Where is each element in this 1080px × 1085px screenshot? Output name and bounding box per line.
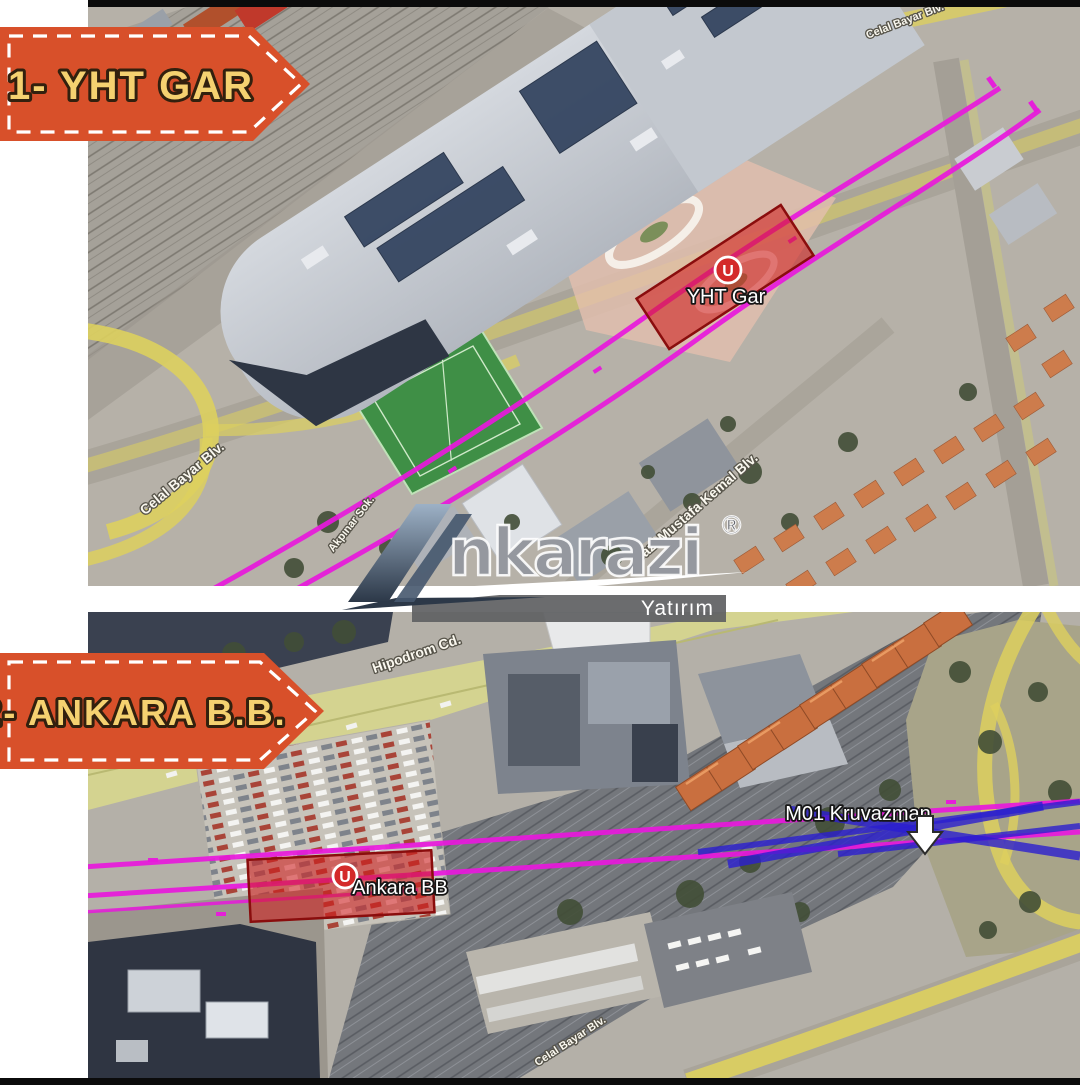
section-2-title: 2- ANKARA B.B.	[0, 692, 287, 733]
map-top-edge	[88, 0, 1080, 7]
metro-station-icon-letter: U	[339, 869, 351, 886]
section-ribbon-2: 2- ANKARA B.B.	[0, 653, 326, 769]
map-bottom-edge	[0, 1078, 1080, 1085]
infographic-page: U YHT Gar Celal Bayar Blv. Akpınar Sok. …	[0, 0, 1080, 1085]
section-ribbon-1: 1- YHT GAR	[0, 27, 312, 141]
m01-kruvazman-label: M01 Kruvazman	[785, 803, 931, 825]
metro-station-icon-letter: U	[722, 263, 734, 280]
section-1-title: 1- YHT GAR	[8, 64, 254, 108]
ankara-bb-label: Ankara BB	[352, 877, 448, 899]
yht-gar-label: YHT Gar	[687, 286, 766, 308]
